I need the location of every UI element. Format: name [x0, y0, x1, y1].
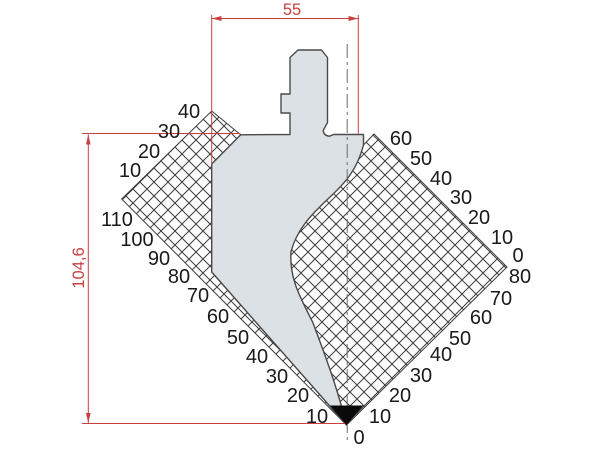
width-arrow-right [349, 16, 359, 21]
height-dimension-value: 104,6 [70, 247, 88, 288]
scale-label: 40 [246, 346, 268, 368]
scale-label: 30 [410, 365, 432, 387]
scale-label: 90 [148, 248, 170, 270]
scale-label: 20 [389, 385, 411, 407]
scale-label: 70 [490, 288, 512, 310]
scale-label: 70 [187, 285, 209, 307]
scale-label: 40 [430, 344, 452, 366]
scale-label: 40 [430, 168, 452, 190]
scale-label: 10 [306, 406, 328, 428]
scale-label: 80 [509, 266, 531, 288]
height-arrow-bottom [86, 413, 91, 423]
width-arrow-left [212, 16, 222, 21]
scale-label: 60 [470, 307, 492, 329]
scale-label: 20 [138, 141, 160, 163]
scale-label: 10 [119, 160, 141, 182]
scale-label: 110 [101, 209, 133, 231]
scale-label: 60 [390, 128, 412, 150]
scale-label: 50 [449, 328, 471, 350]
punch-drawing-canvas: 55 104,6 4030201011010090807060504030201… [0, 0, 600, 450]
scale-label: 0 [353, 427, 364, 449]
scale-label: 20 [468, 207, 490, 229]
scale-label: 60 [207, 306, 229, 328]
scale-label: 10 [369, 406, 391, 428]
scale-label: 40 [178, 101, 200, 123]
height-arrow-top [86, 135, 91, 145]
width-dimension-value: 55 [283, 1, 301, 19]
scale-label: 30 [158, 121, 180, 143]
scale-label: 30 [266, 366, 288, 388]
punch-drawing: 55 104,6 4030201011010090807060504030201… [0, 0, 600, 450]
scale-label: 10 [491, 227, 513, 249]
scale-label: 30 [450, 187, 472, 209]
tip-scale: 0 [353, 427, 364, 449]
scale-label: 0 [512, 245, 523, 267]
scale-label: 50 [410, 148, 432, 170]
scale-label: 20 [287, 385, 309, 407]
punch-tip-marker [330, 406, 363, 426]
